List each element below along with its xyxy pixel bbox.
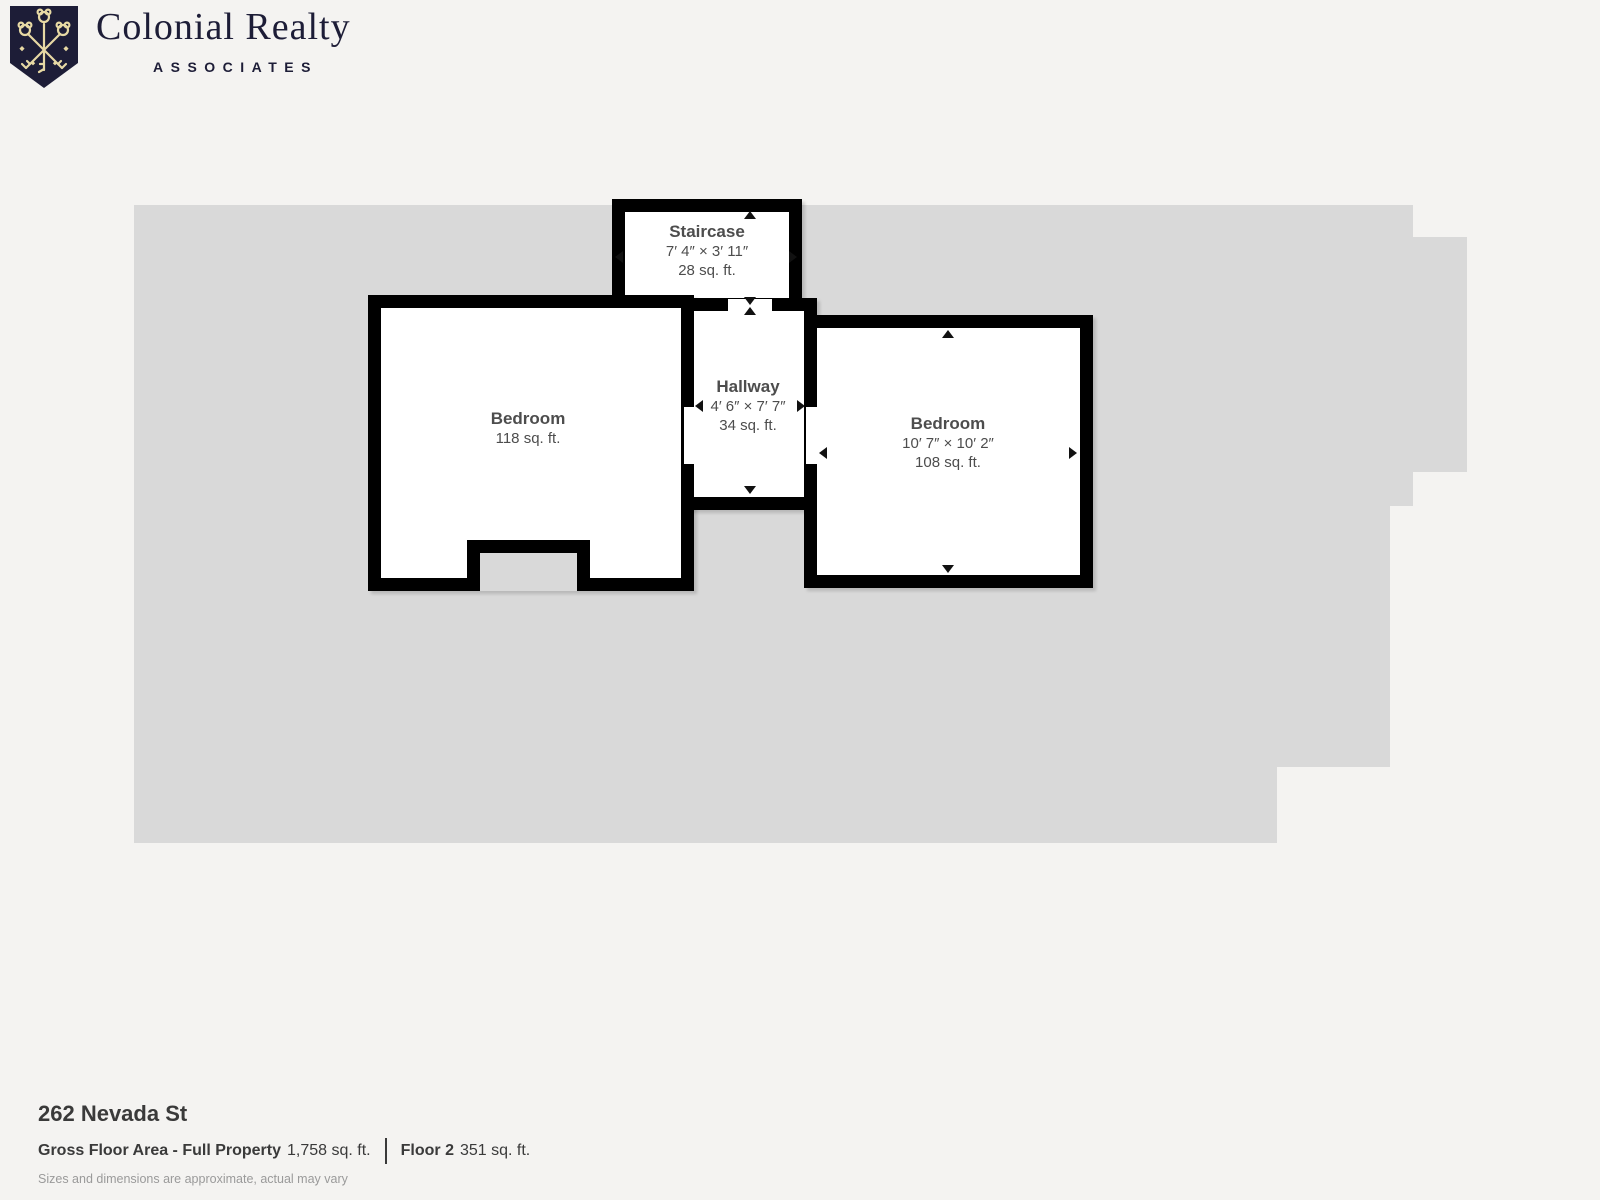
staircase-arrow-up-icon [744,211,756,219]
property-address: 262 Nevada St [38,1101,530,1127]
room-dimensions: 4′ 6″ × 7′ 7″ [710,397,785,416]
room-area: 108 sq. ft. [902,453,994,472]
bedroom-left-label: Bedroom 118 sq. ft. [491,409,566,448]
floor-label: Floor 2 [401,1142,454,1160]
bedroom-right-arrow-right-icon [1069,447,1077,459]
staircase-arrow-right-icon [789,251,797,263]
room-name: Hallway [710,377,785,397]
door-opening-bedroom-right [806,407,817,464]
staircase-arrow-left-icon [615,251,623,263]
bedroom-left-notch-fill [480,553,577,591]
room-area: 118 sq. ft. [491,429,566,448]
floor-plan-page: Colonial Realty ASSOCIATES Staircase 7′ … [0,0,1600,1200]
door-opening-bedroom-left [684,407,694,464]
staircase-arrow-down-icon [744,297,756,305]
separator-bar [385,1138,387,1164]
bedroom-right-arrow-down-icon [942,565,954,573]
bedroom-right-arrow-left-icon [819,447,827,459]
floor-area-value: 351 sq. ft. [460,1142,530,1160]
room-name: Bedroom [902,414,994,434]
floor-footprint-silhouette [0,0,1600,1200]
gross-floor-area-label: Gross Floor Area - Full Property [38,1142,281,1160]
room-area: 34 sq. ft. [710,416,785,435]
hallway-label: Hallway 4′ 6″ × 7′ 7″ 34 sq. ft. [710,377,785,435]
footer: 262 Nevada St Gross Floor Area - Full Pr… [38,1101,530,1186]
disclaimer-text: Sizes and dimensions are approximate, ac… [38,1172,530,1186]
room-name: Staircase [666,222,748,242]
bedroom-right-arrow-up-icon [942,330,954,338]
room-dimensions: 7′ 4″ × 3′ 11″ [666,242,748,261]
room-dimensions: 10′ 7″ × 10′ 2″ [902,434,994,453]
hallway-arrow-up-icon [744,307,756,315]
room-area: 28 sq. ft. [666,261,748,280]
area-summary: Gross Floor Area - Full Property 1,758 s… [38,1138,530,1164]
hallway-arrow-right-icon [797,400,805,412]
room-name: Bedroom [491,409,566,429]
gross-floor-area-value: 1,758 sq. ft. [287,1142,371,1160]
hallway-arrow-down-icon [744,486,756,494]
hallway-arrow-left-icon [695,400,703,412]
staircase-label: Staircase 7′ 4″ × 3′ 11″ 28 sq. ft. [666,222,748,280]
bedroom-right-label: Bedroom 10′ 7″ × 10′ 2″ 108 sq. ft. [902,414,994,472]
